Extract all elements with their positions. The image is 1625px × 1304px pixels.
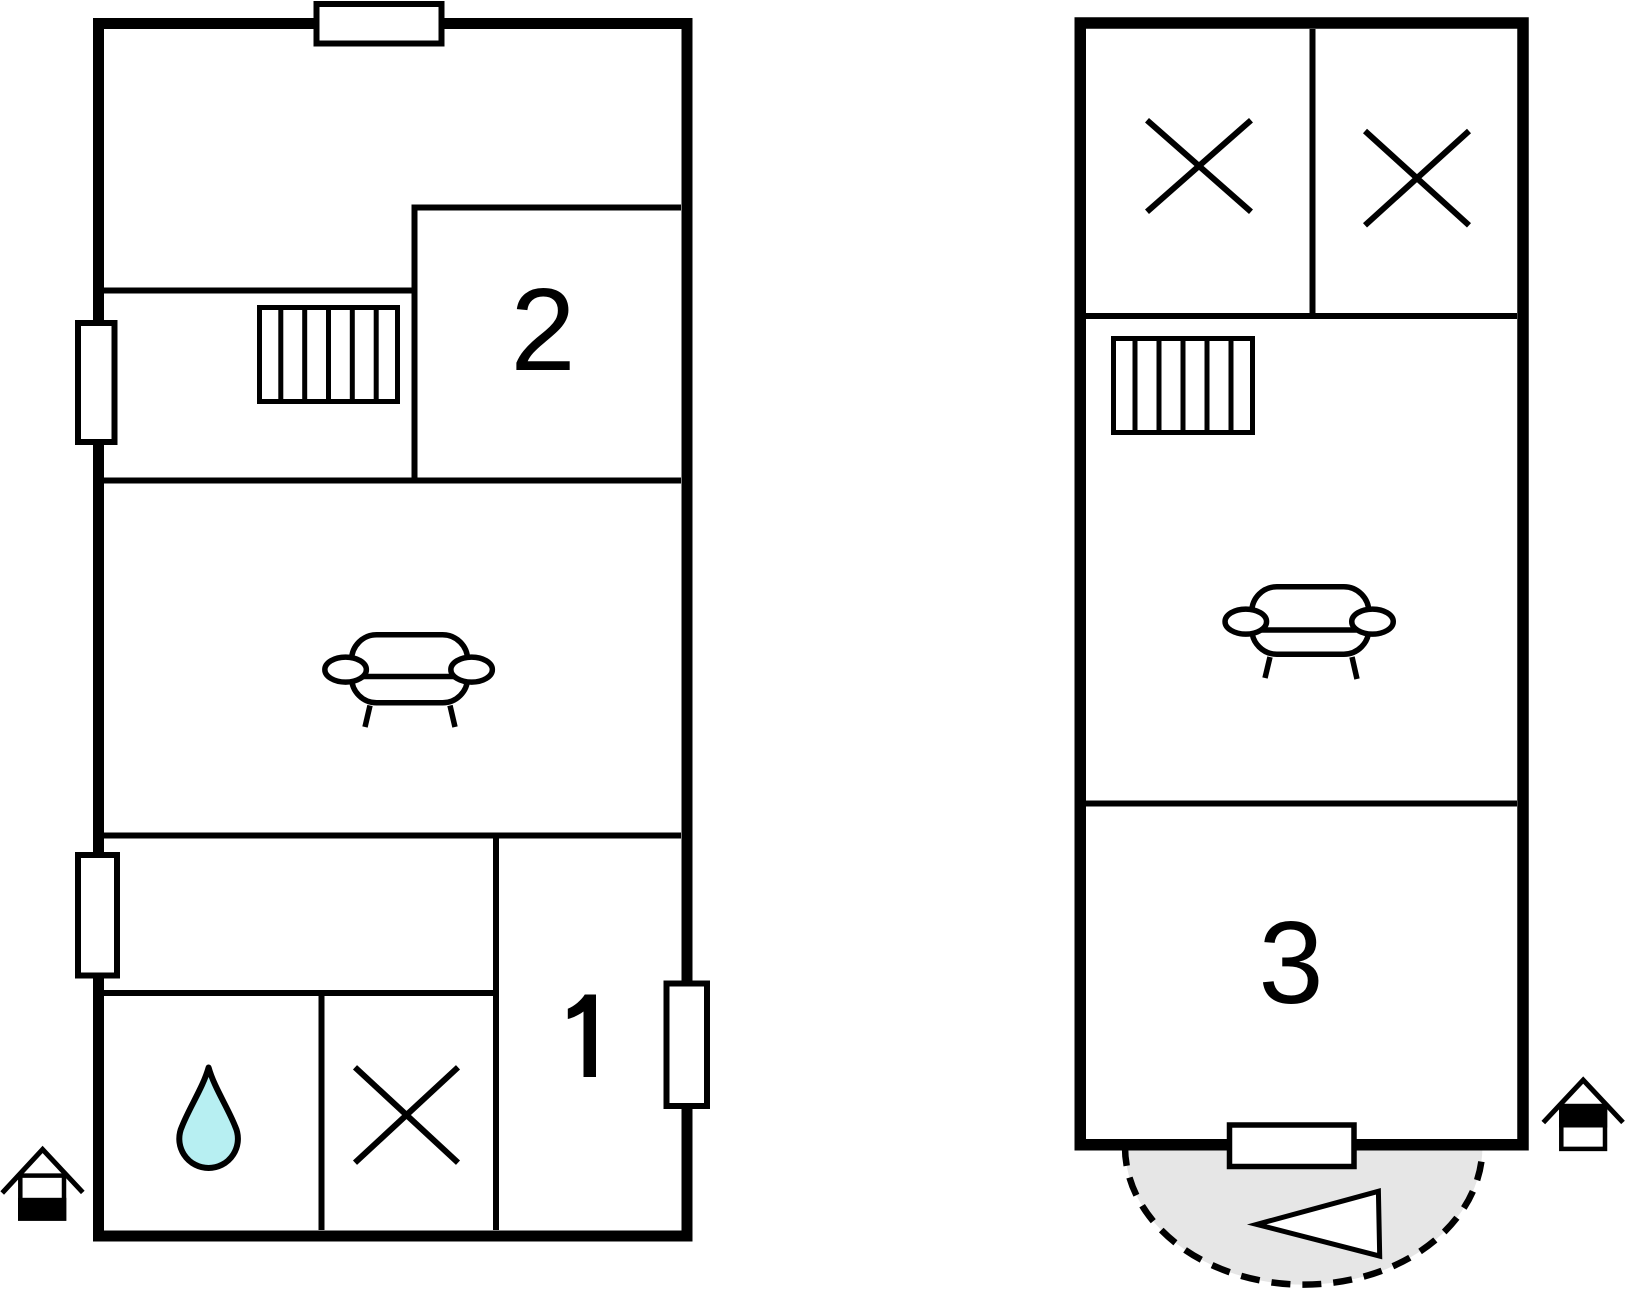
svg-text:3: 3 — [1258, 897, 1323, 1028]
svg-text:2: 2 — [510, 264, 575, 395]
